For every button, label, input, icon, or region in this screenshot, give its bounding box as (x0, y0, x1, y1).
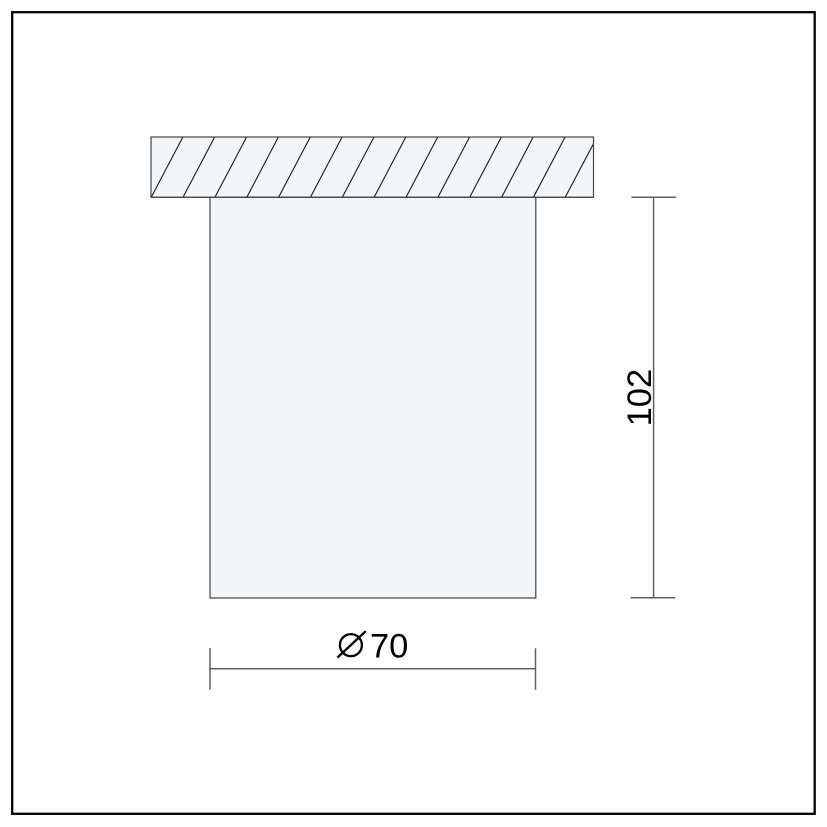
svg-text:102: 102 (621, 369, 659, 427)
svg-text:70: 70 (370, 627, 408, 665)
